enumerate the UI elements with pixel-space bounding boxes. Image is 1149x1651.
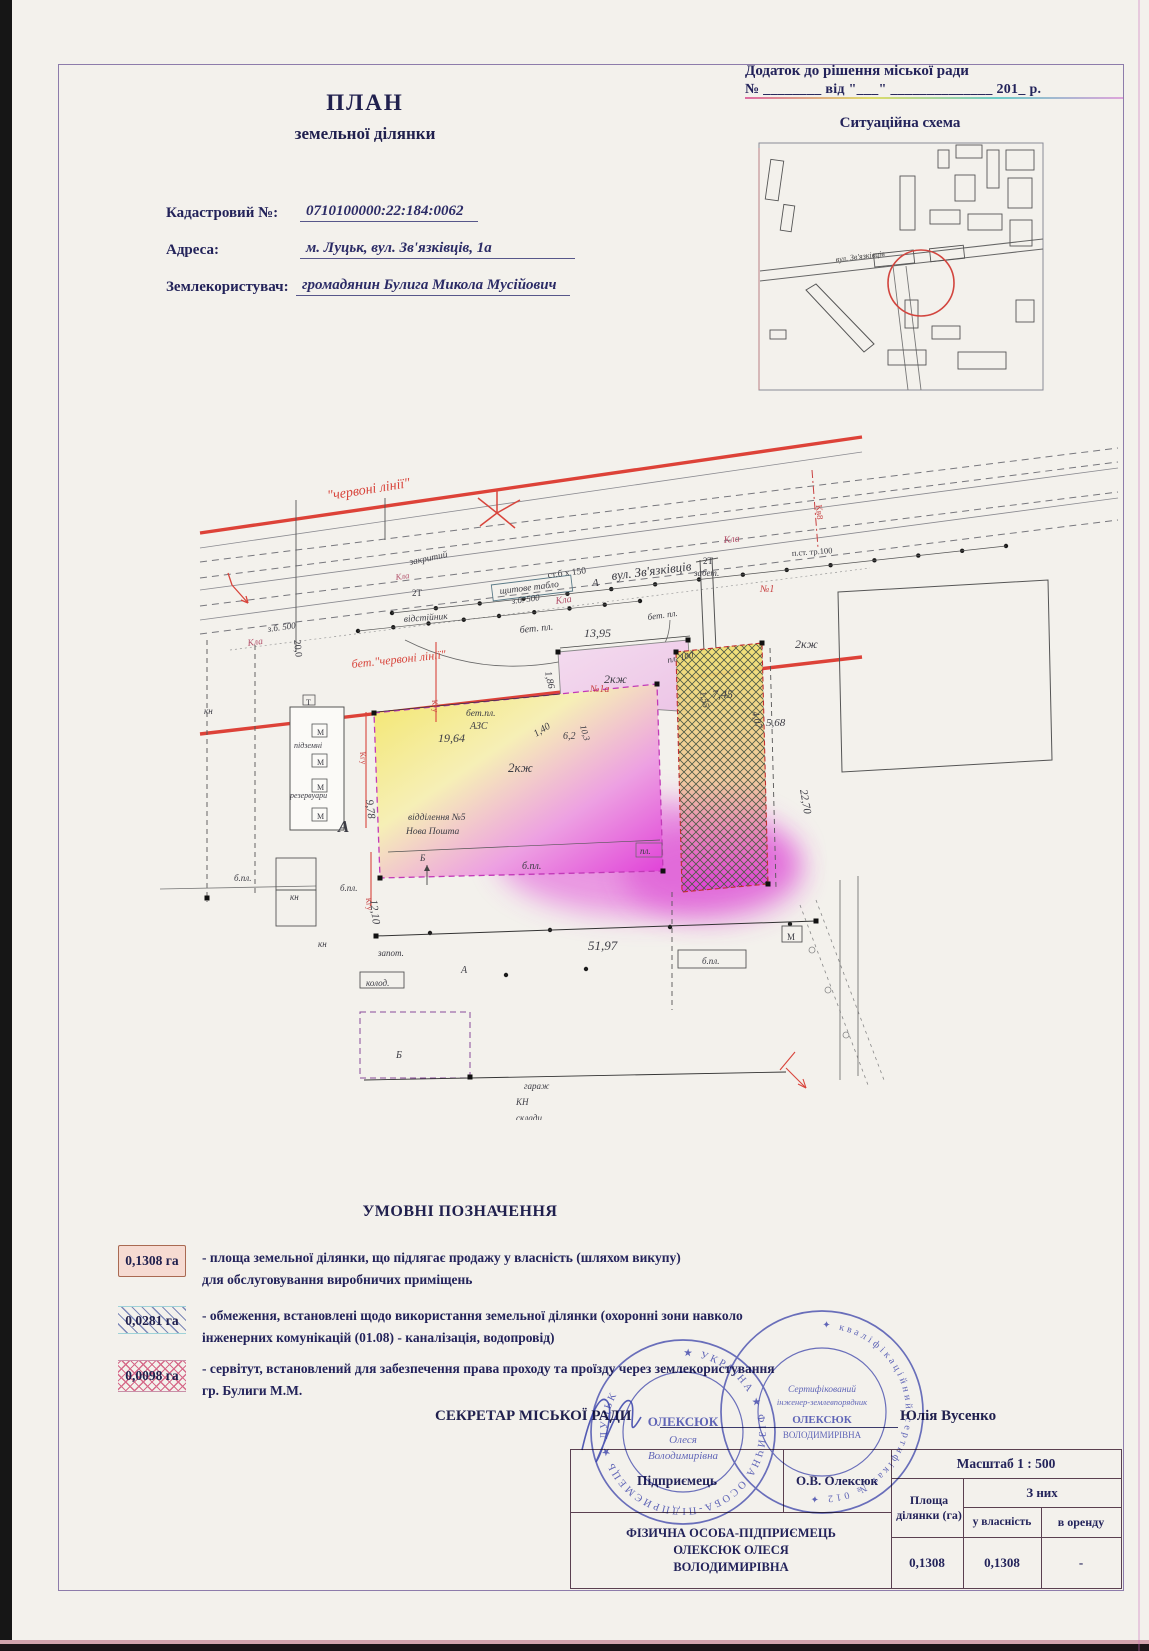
plan-label: закритий bbox=[407, 549, 448, 568]
plan-label: б.пл. bbox=[702, 956, 719, 966]
plan-label: Б bbox=[419, 853, 426, 863]
stamp1-first-name: Олеся bbox=[669, 1434, 697, 1446]
legend-title: УМОВНІ ПОЗНАЧЕННЯ bbox=[280, 1203, 640, 1221]
plan-label: 7,45 bbox=[712, 687, 733, 701]
stamp2-line1: Сертифікований bbox=[788, 1384, 856, 1395]
plan-label: 2кж bbox=[795, 637, 818, 651]
plan-label: 51,97 bbox=[588, 938, 618, 953]
stamp2-line4: ВОЛОДИМИРІВНА bbox=[783, 1430, 862, 1440]
plan-label: п.ст. тр.100 bbox=[791, 545, 832, 558]
plan-label: з.б. 500 bbox=[266, 620, 297, 634]
plan-label: запот. bbox=[377, 948, 404, 958]
situation-location-circle bbox=[888, 250, 954, 316]
plan-label: 19,64 bbox=[438, 731, 465, 745]
plan-label: Кла bbox=[394, 570, 410, 582]
plan-label: М bbox=[317, 783, 324, 792]
stamps-overlay: ★ УКРАЇНА ★ ФІЗИЧНА ОСОБА-ПІДПРИЄМЕЦЬ ★ … bbox=[0, 1290, 1149, 1620]
scan-edge-bottom bbox=[0, 1644, 1149, 1651]
plan-label: ст.б х 150 bbox=[547, 565, 587, 581]
stamp2-line2: інженер-землевпорядник bbox=[777, 1397, 868, 1407]
plan-label: 5,68 bbox=[766, 717, 786, 729]
plan-label: пл. bbox=[640, 846, 651, 856]
plan-label: №1 bbox=[759, 584, 774, 595]
plan-label: кн bbox=[204, 706, 213, 716]
plan-label: Т bbox=[306, 698, 311, 707]
stamp1-ring-text: ★ УКРАЇНА ★ ФІЗИЧНА ОСОБА-ПІДПРИЄМЕЦЬ ★ … bbox=[599, 1348, 767, 1516]
plan-label: склади bbox=[516, 1113, 542, 1120]
plan-label: бет. пл. bbox=[519, 622, 554, 636]
plan-label: кн bbox=[290, 892, 299, 902]
situation-scheme-map: вул. Зв'язківців bbox=[0, 130, 1149, 410]
plan-label: 22,70 bbox=[797, 788, 813, 815]
plan-label: б.пл. bbox=[340, 883, 357, 893]
plan-label: КН bbox=[515, 1097, 529, 1107]
stamp2-line3: ОЛЕКСЮК bbox=[792, 1414, 852, 1426]
land-plan-drawing: "червоні лінії"бет."червоні лінії"Авул. … bbox=[0, 420, 1149, 1120]
page-title: ПЛАН bbox=[240, 90, 490, 116]
plan-label: 2кж bbox=[508, 760, 533, 775]
plan-label: А bbox=[337, 817, 349, 836]
plan-label: 9,78 bbox=[363, 799, 377, 820]
plan-label: б.пл. bbox=[522, 861, 541, 872]
legend-desc-parcel-2: для обслуговування виробничих приміщень bbox=[202, 1269, 962, 1290]
plan-label: 6,2 bbox=[563, 731, 576, 742]
stamp1-name: ОЛЕКСЮК bbox=[648, 1414, 719, 1429]
legend-swatch-parcel: 0,1308 га bbox=[118, 1245, 186, 1277]
plan-label: Кгу bbox=[358, 751, 368, 764]
plan-label: б.пл. bbox=[234, 873, 251, 883]
plan-label: Кла bbox=[554, 594, 572, 607]
plan-label: М bbox=[317, 758, 324, 767]
plan-label: "червоні лінії" bbox=[326, 476, 411, 504]
plan-label: підземні bbox=[294, 741, 322, 750]
plan-label: 2Т bbox=[412, 588, 423, 598]
plan-label: вул. Зв'язківців bbox=[611, 558, 693, 583]
plan-label: бет."червоні лінії" bbox=[351, 647, 448, 671]
annex-header-line2: № ________ від "___" ______________ 201_… bbox=[745, 82, 1135, 98]
plan-label: М bbox=[317, 728, 324, 737]
situation-street-label: вул. Зв'язківців bbox=[835, 249, 886, 264]
plan-label: колод. bbox=[366, 978, 389, 988]
plan-label: А bbox=[591, 577, 599, 589]
annex-header-line1: Додаток до рішення міської ради bbox=[745, 63, 1135, 80]
plan-label: АЗС bbox=[469, 721, 488, 732]
plan-label: Кв8 bbox=[814, 504, 825, 520]
plan-label: М bbox=[317, 812, 324, 821]
annex-header-rule bbox=[745, 97, 1123, 99]
plan-label: Кгу bbox=[364, 897, 374, 910]
red-line-upper bbox=[200, 437, 862, 533]
stamp1-patronymic: Володимирівна bbox=[648, 1450, 719, 1462]
plan-label: 13,95 bbox=[584, 626, 611, 640]
plan-label: 1,86 bbox=[542, 670, 556, 689]
plan-label: Б bbox=[395, 1050, 402, 1061]
plan-label: відстійник bbox=[403, 611, 448, 625]
plan-label: гараж bbox=[524, 1081, 550, 1091]
plan-label: бет. пл. bbox=[647, 608, 678, 622]
plan-label: 20,0 bbox=[291, 639, 304, 658]
plan-label: відділення №5 bbox=[408, 812, 466, 823]
plan-label: кн bbox=[318, 939, 327, 949]
plan-label: бет.пл. bbox=[466, 708, 496, 719]
plan-label: 2Т bbox=[703, 556, 714, 566]
plan-label: Кла bbox=[722, 533, 740, 546]
plan-label: 2кж bbox=[604, 672, 627, 686]
servitude-hatched-strip bbox=[676, 643, 768, 892]
plan-label: Кла bbox=[246, 637, 264, 649]
plan-label: забет. bbox=[693, 568, 719, 578]
plan-label: Кгу bbox=[430, 699, 440, 712]
plan-label: резервуари bbox=[289, 791, 327, 800]
legend-desc-parcel-1: - площа земельної ділянки, що підлягає п… bbox=[202, 1247, 962, 1268]
plan-label: М bbox=[787, 932, 795, 942]
plan-label: А bbox=[460, 965, 468, 976]
main-parcel-building bbox=[374, 684, 663, 878]
plan-label: Нова Пошта bbox=[405, 827, 460, 837]
